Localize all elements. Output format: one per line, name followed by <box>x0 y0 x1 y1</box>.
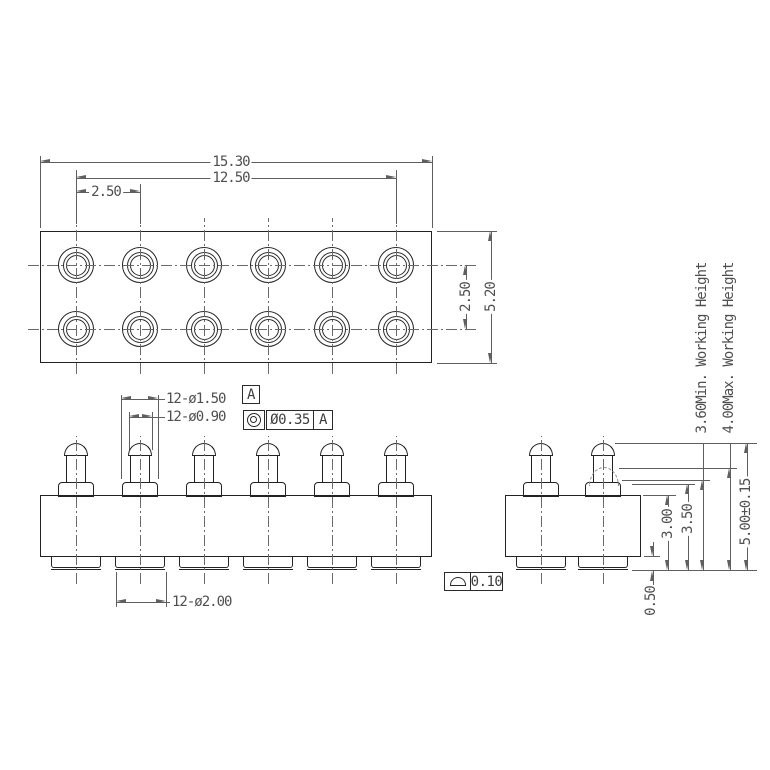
arrow-icon <box>744 560 748 570</box>
arrow-icon <box>665 495 669 505</box>
dim-total-width: 15.30 <box>210 155 251 169</box>
ext-line-body-top <box>643 495 676 496</box>
row-centerline <box>28 329 476 330</box>
dim-total-depth: 5.20 <box>484 280 498 314</box>
dim-total-height: 5.00±0.15 <box>739 477 753 548</box>
arrow-icon <box>142 414 152 418</box>
arrow-icon <box>121 396 131 400</box>
arrow-icon <box>148 396 158 400</box>
arrow-icon <box>700 560 704 570</box>
ext-line-min-height <box>622 480 710 481</box>
arrow-icon <box>130 189 140 193</box>
column-centerline <box>204 218 205 374</box>
dim-line-working-height-max <box>730 444 731 570</box>
pin-centerline <box>204 436 205 584</box>
pin-centerline <box>541 436 542 584</box>
arrow-icon <box>488 353 492 363</box>
ext-line <box>121 395 122 479</box>
arrow-icon <box>76 175 86 179</box>
top-view-plate <box>40 231 432 363</box>
arrow-icon <box>40 159 50 163</box>
arrow-icon <box>650 546 654 556</box>
dim-body-plus-tail: 3.00 <box>661 507 675 541</box>
pin-centerline <box>603 436 604 584</box>
column-centerline <box>76 218 77 374</box>
fcf-tolerance-cell: Ø0.35 <box>266 410 314 430</box>
callout-plunger-dia: 12-ø0.90 <box>166 410 225 424</box>
pin-centerline <box>396 436 397 584</box>
column-centerline <box>396 218 397 374</box>
callout-tail-dia: 12-ø2.00 <box>172 595 231 609</box>
dim-row-pitch: 2.50 <box>459 280 473 314</box>
arrow-icon <box>463 265 467 275</box>
pin-centerline <box>268 436 269 584</box>
dim-pin-span: 12.50 <box>210 171 251 185</box>
fcf-tolerance: Ø0.35 <box>270 412 310 428</box>
engineering-drawing: 15.30 12.50 2.50 2.50 5.20 12-ø1.50 A 12… <box>0 0 770 770</box>
ext-line <box>40 156 41 228</box>
dim-flange-to-tail: 3.50 <box>681 502 695 536</box>
front-view-body <box>40 495 432 557</box>
concentricity-icon <box>247 413 261 427</box>
pin-centerline <box>140 436 141 584</box>
dim-line-working-height-min <box>703 444 704 570</box>
arrow-icon <box>386 175 396 179</box>
column-centerline <box>268 218 269 374</box>
fcf-datum: A <box>319 412 327 428</box>
arrow-icon <box>685 484 689 494</box>
arrow-icon <box>744 443 748 453</box>
arrow-icon <box>650 571 654 581</box>
fcf-profile-tolerance-cell: 0.10 <box>470 572 503 591</box>
working-height-min: 3.60Min. Working Height <box>695 263 709 434</box>
arrow-icon <box>116 599 126 603</box>
arrow-icon <box>463 319 467 329</box>
callout-flange-dia: 12-ø1.50 <box>166 392 225 406</box>
arrow-icon <box>727 468 731 478</box>
side-view-body <box>505 495 641 557</box>
profile-of-surface-icon <box>450 577 466 586</box>
dim-col-pitch: 2.50 <box>89 185 123 199</box>
ext-line <box>140 184 141 224</box>
working-height-max: 4.00Max. Working Height <box>722 263 736 434</box>
arrow-icon <box>665 560 669 570</box>
arrow-icon <box>156 599 166 603</box>
ext-line <box>437 363 497 364</box>
arrow-icon <box>685 560 689 570</box>
profile-tolerance: 0.10 <box>471 574 503 590</box>
datum-feature-box: A <box>242 385 260 404</box>
datum-label: A <box>247 387 255 403</box>
dim-tail-height: 0.50 <box>644 586 658 616</box>
column-centerline <box>332 218 333 374</box>
fcf-symbol-cell <box>243 410 265 430</box>
arrow-icon <box>700 480 704 490</box>
arrow-icon <box>727 560 731 570</box>
pin-centerline <box>76 436 77 584</box>
ext-line <box>432 156 433 228</box>
pin-centerline <box>332 436 333 584</box>
column-centerline <box>140 218 141 374</box>
ext-line-body-bottom <box>644 556 660 557</box>
fcf-datum-cell: A <box>313 410 333 430</box>
ext-line-pin-top <box>615 443 757 444</box>
arrow-icon <box>488 231 492 241</box>
fcf-profile-symbol-cell <box>444 572 471 591</box>
ext-line <box>396 170 397 224</box>
arrow-icon <box>129 414 139 418</box>
arrow-icon <box>422 159 432 163</box>
row-centerline <box>28 265 476 266</box>
ext-line-compressed-top <box>619 468 737 469</box>
ext-line <box>158 395 159 479</box>
arrow-icon <box>76 189 86 193</box>
